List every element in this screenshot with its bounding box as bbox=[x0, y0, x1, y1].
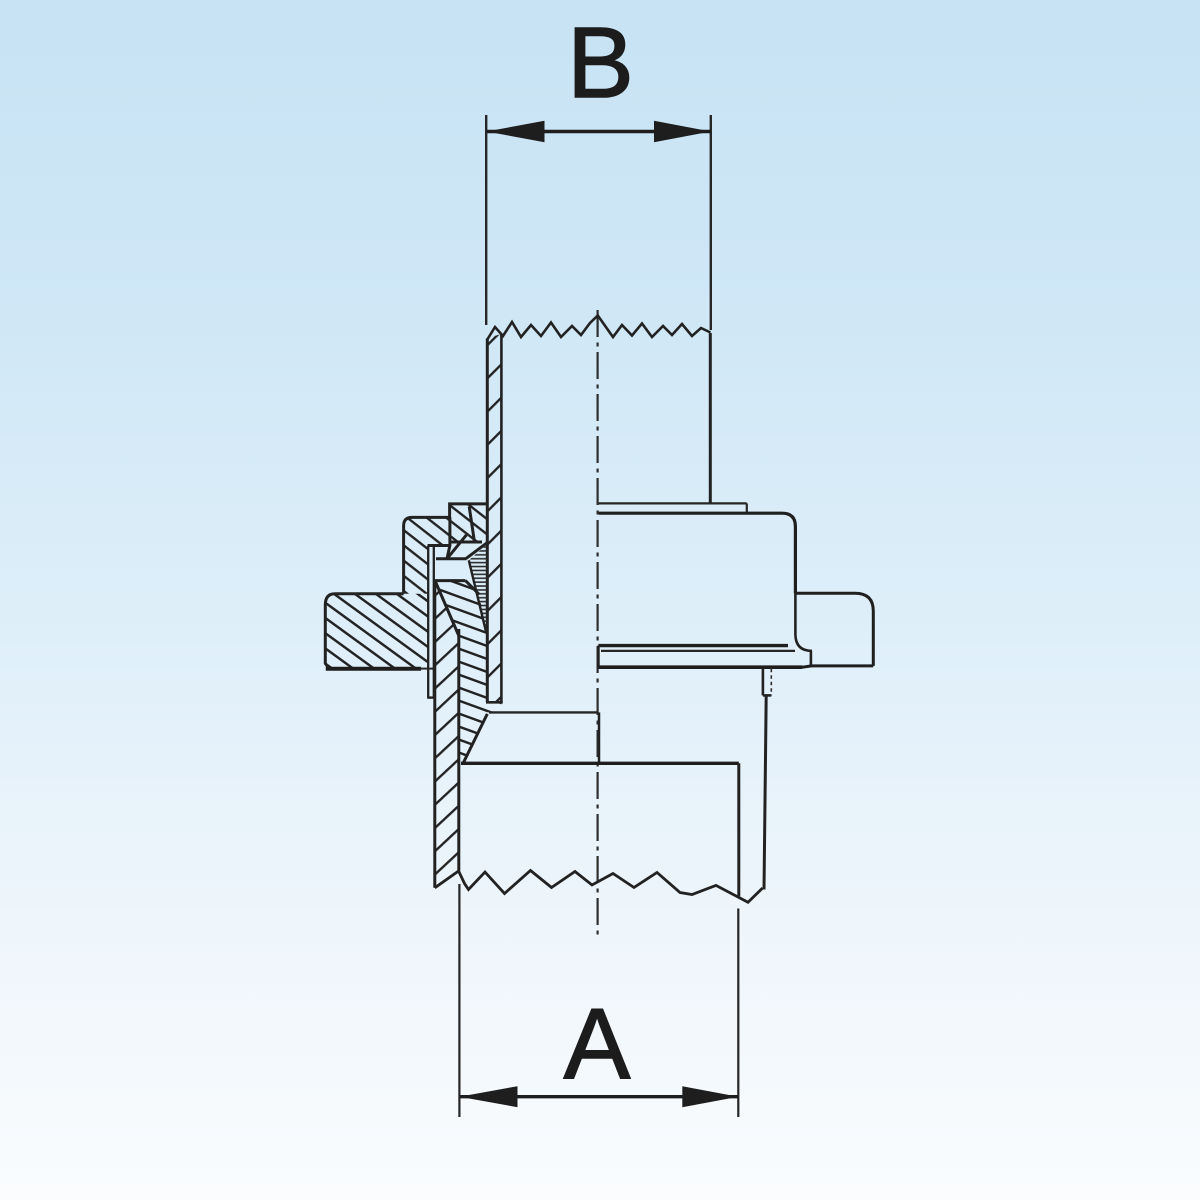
svg-text:A: A bbox=[564, 988, 631, 1100]
svg-text:B: B bbox=[567, 7, 634, 119]
